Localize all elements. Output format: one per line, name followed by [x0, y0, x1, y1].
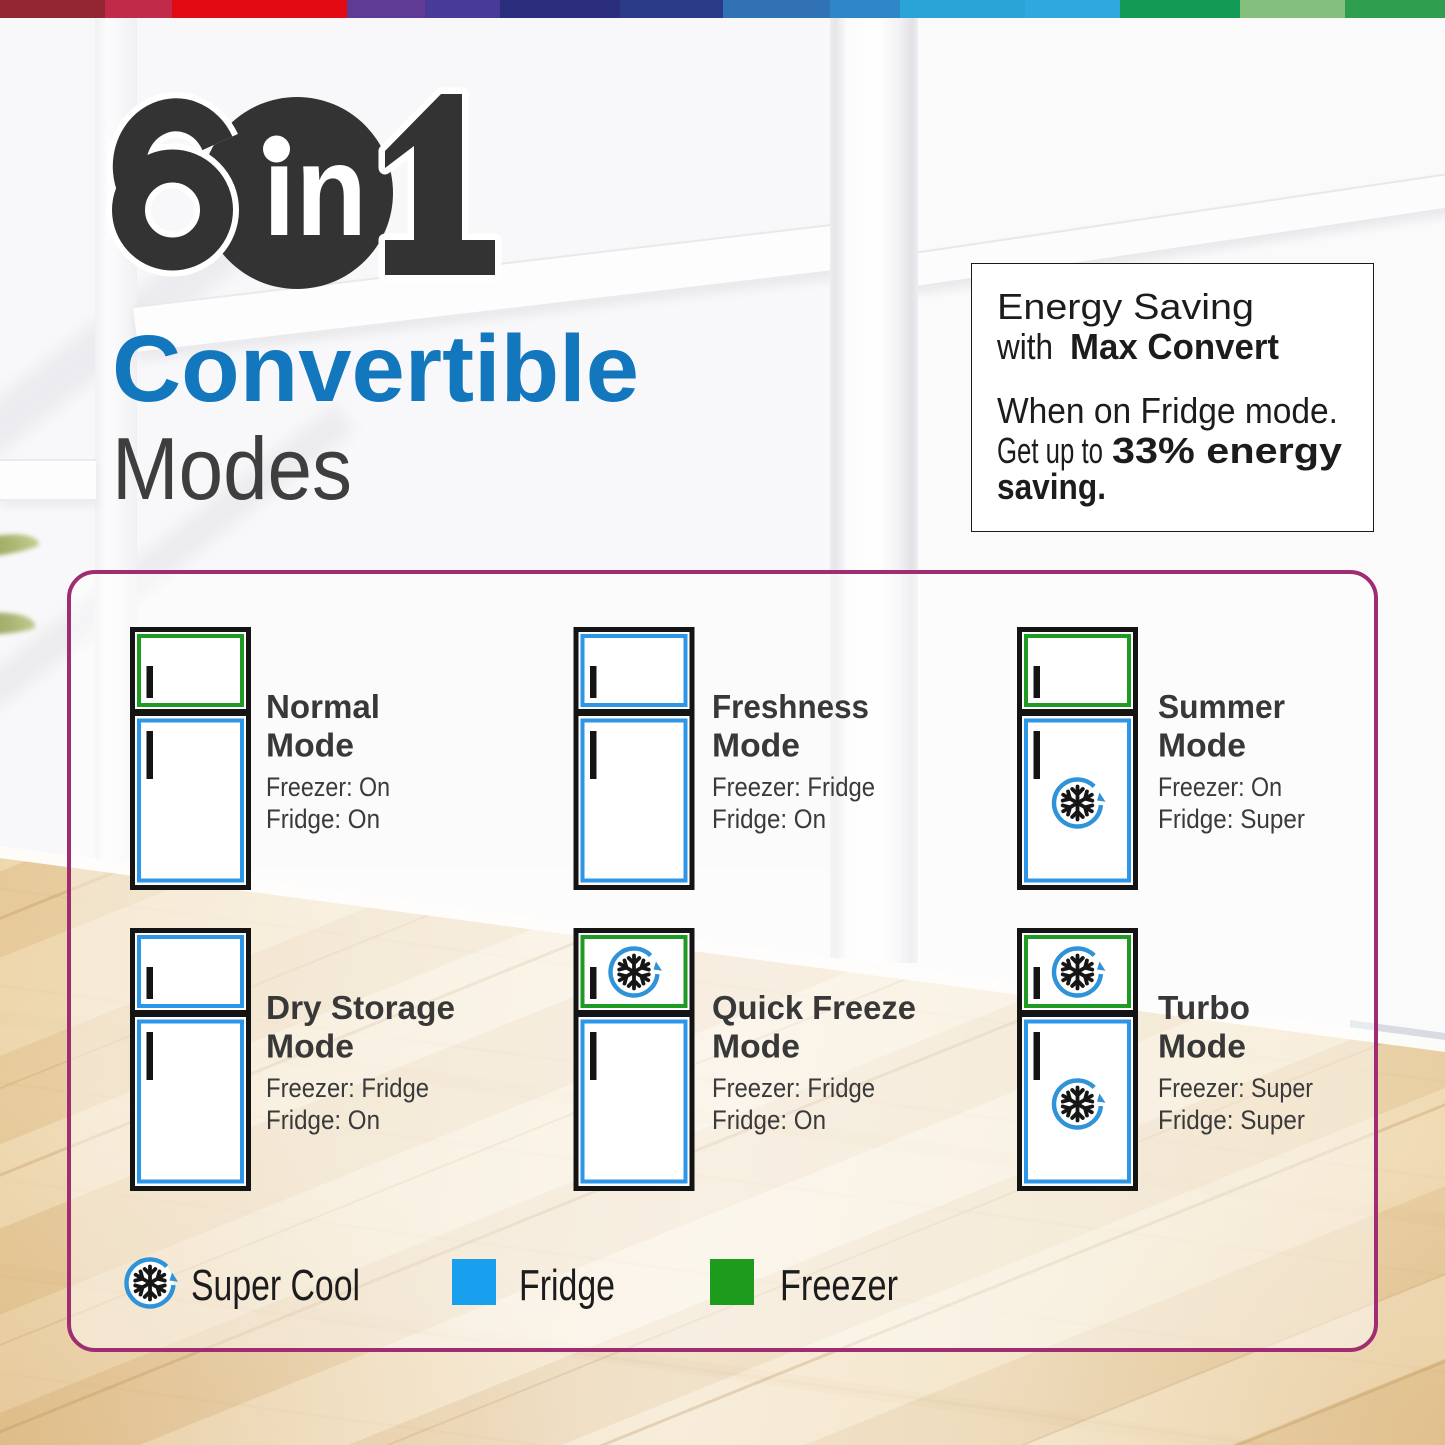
svg-text:Fridge: On: Fridge: On [266, 1105, 380, 1135]
svg-text:saving.: saving. [997, 466, 1106, 507]
svg-text:Freezer: Freezer [780, 1261, 898, 1310]
svg-text:Mode: Mode [266, 727, 354, 764]
svg-text:Get up to: Get up to [997, 430, 1103, 471]
svg-text:Freezer: Super: Freezer: Super [1158, 1073, 1313, 1103]
svg-text:Max Convert: Max Convert [1070, 326, 1279, 367]
svg-text:Fridge: On: Fridge: On [712, 804, 826, 834]
svg-text:33% energy: 33% energy [1112, 430, 1342, 471]
svg-text:Super Cool: Super Cool [191, 1261, 360, 1310]
svg-text:Fridge: Fridge [519, 1261, 615, 1310]
svg-text:Freezer: Fridge: Freezer: Fridge [712, 1073, 875, 1103]
svg-text:Convertible: Convertible [112, 316, 639, 422]
svg-text:Freezer: Fridge: Freezer: Fridge [266, 1073, 429, 1103]
svg-text:Mode: Mode [1158, 1028, 1246, 1065]
svg-text:Mode: Mode [712, 727, 800, 764]
svg-text:Freezer: Fridge: Freezer: Fridge [712, 772, 875, 802]
svg-text:Fridge: On: Fridge: On [266, 804, 380, 834]
svg-text:Dry Storage: Dry Storage [266, 989, 455, 1026]
svg-text:Mode: Mode [266, 1028, 354, 1065]
svg-text:Modes: Modes [112, 419, 352, 518]
svg-text:Turbo: Turbo [1158, 989, 1250, 1026]
svg-text:Fridge: On: Fridge: On [712, 1105, 826, 1135]
svg-text:Freezer: On: Freezer: On [266, 772, 390, 802]
svg-text:When on Fridge mode.: When on Fridge mode. [997, 390, 1338, 431]
svg-text:Mode: Mode [712, 1028, 800, 1065]
svg-text:with: with [996, 326, 1053, 367]
svg-text:Fridge: Super: Fridge: Super [1158, 804, 1305, 834]
svg-text:Summer: Summer [1158, 688, 1285, 725]
svg-text:Mode: Mode [1158, 727, 1246, 764]
svg-text:Quick Freeze: Quick Freeze [712, 989, 916, 1026]
svg-text:Energy Saving: Energy Saving [997, 286, 1254, 327]
svg-text:Fridge: Super: Fridge: Super [1158, 1105, 1305, 1135]
svg-text:Freshness: Freshness [712, 688, 869, 725]
svg-text:Freezer: On: Freezer: On [1158, 772, 1282, 802]
svg-text:Normal: Normal [266, 688, 380, 725]
